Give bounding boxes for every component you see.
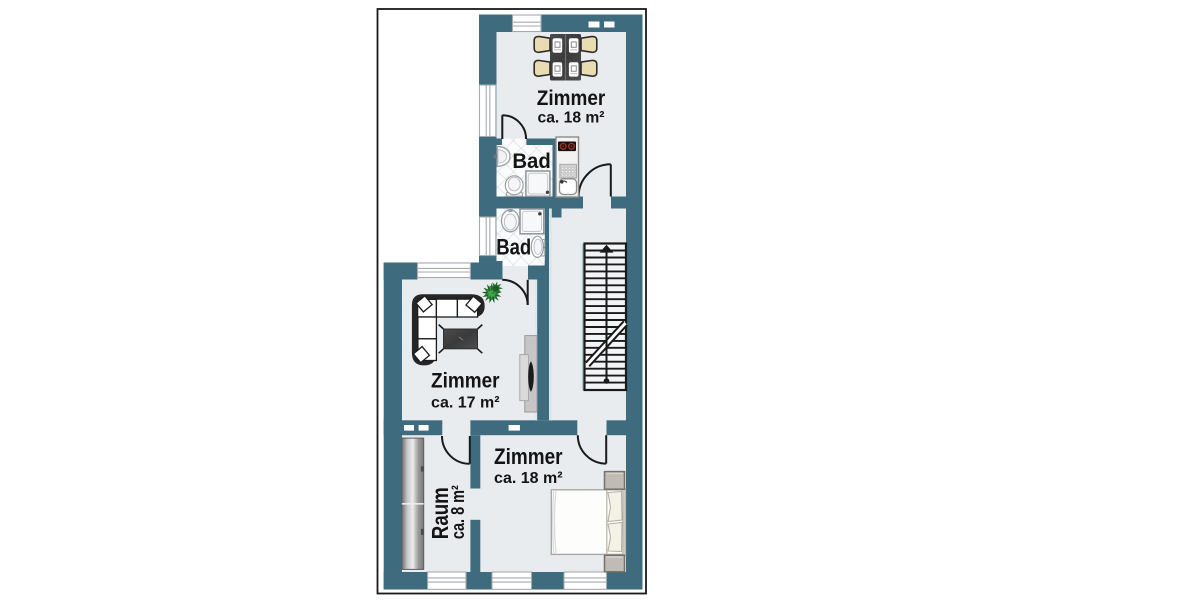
svg-text:ca. 18 m²: ca. 18 m² [494,470,563,487]
svg-text:ca. 17 m²: ca. 17 m² [431,394,500,411]
svg-text:Zimmer: Zimmer [431,369,500,393]
svg-text:Bad: Bad [512,149,551,173]
svg-text:ca. 18 m²: ca. 18 m² [538,109,605,126]
svg-text:Bad: Bad [496,235,531,260]
svg-text:ca. 8 m²: ca. 8 m² [448,485,468,539]
svg-text:Zimmer: Zimmer [494,444,563,469]
svg-text:Zimmer: Zimmer [537,86,606,110]
